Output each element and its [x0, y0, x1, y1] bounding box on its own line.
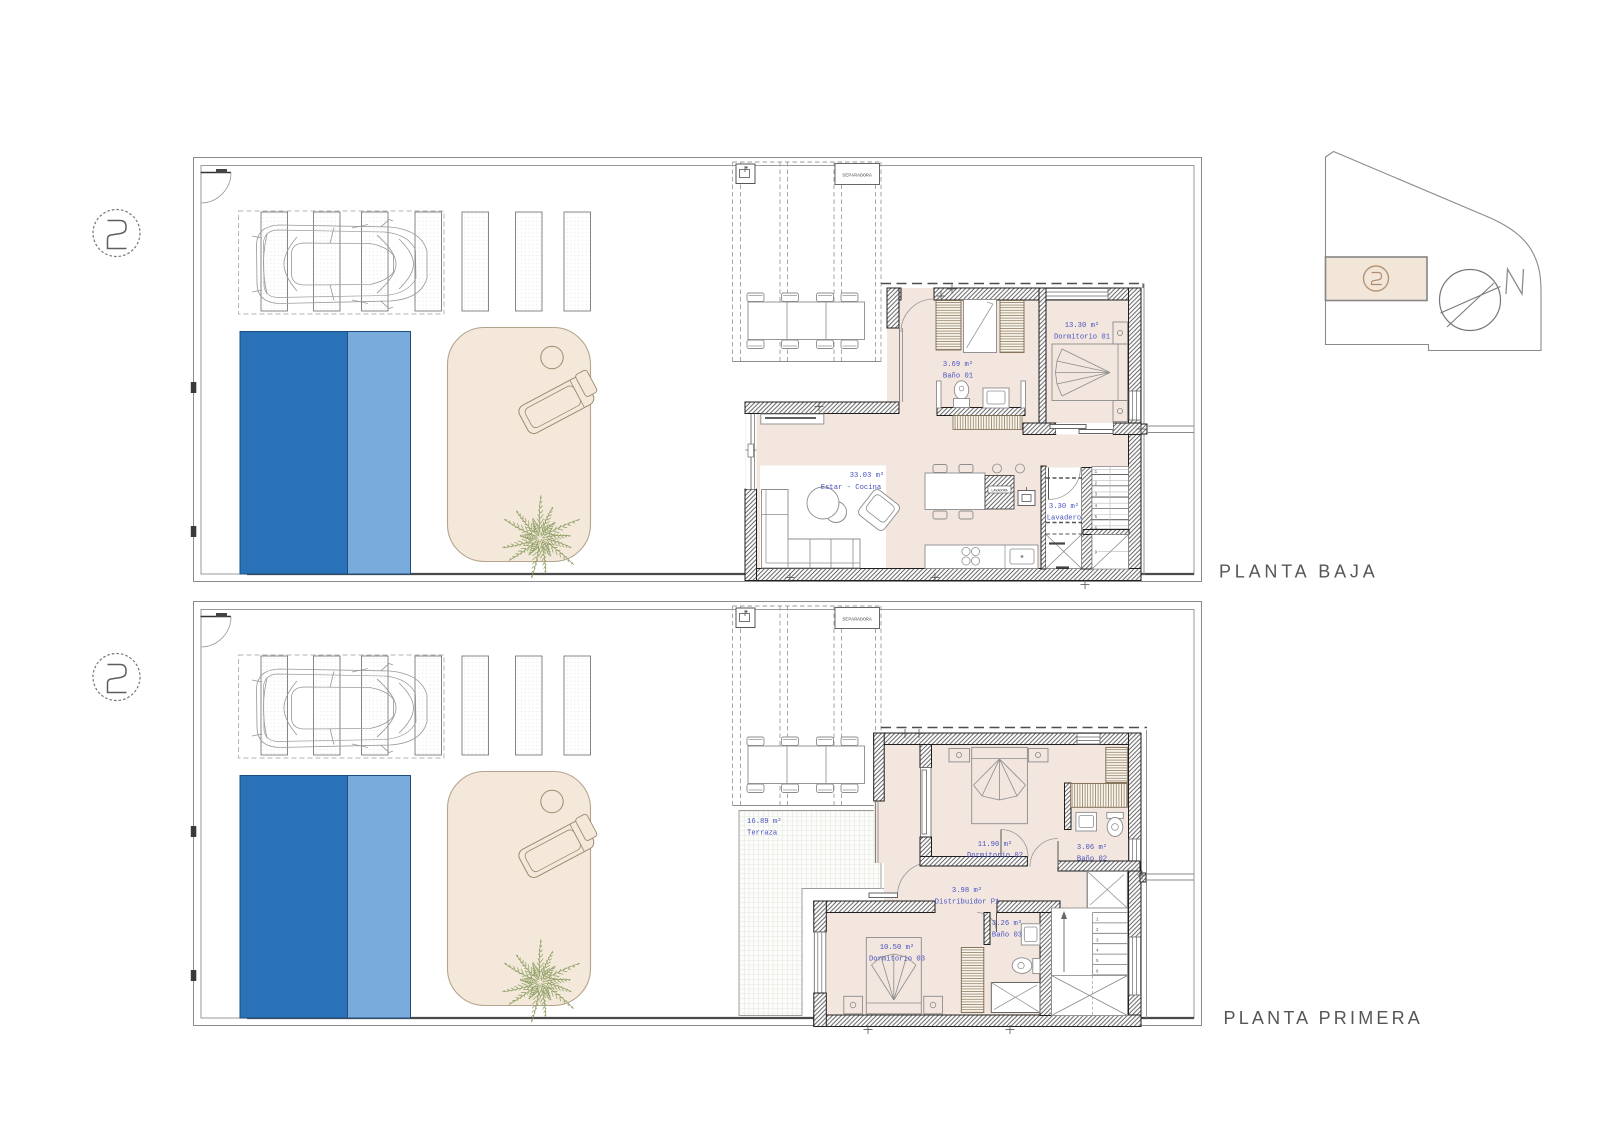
svg-text:2: 2: [1095, 481, 1098, 486]
svg-text:SEPARADORA: SEPARADORA: [842, 617, 872, 623]
svg-text:Estar - Cocina: Estar - Cocina: [821, 484, 882, 492]
svg-text:Distribuidor P1: Distribuidor P1: [935, 899, 1000, 907]
svg-text:4: 4: [1095, 504, 1098, 509]
svg-text:9: 9: [1095, 551, 1098, 556]
svg-text:13.30 m²: 13.30 m²: [1065, 321, 1100, 330]
svg-text:3.06 m²: 3.06 m²: [1077, 843, 1107, 852]
svg-text:3.69 m²: 3.69 m²: [943, 360, 973, 369]
svg-text:Terraza: Terraza: [747, 830, 778, 838]
svg-text:3.30 m²: 3.30 m²: [1049, 502, 1079, 511]
svg-text:3.98 m²: 3.98 m²: [952, 886, 982, 895]
svg-text:Baño 02: Baño 02: [1077, 856, 1107, 864]
svg-text:10.50 m²: 10.50 m²: [880, 943, 915, 952]
svg-text:LAVADORA: LAVADORA: [991, 490, 1008, 494]
svg-text:Dormitorio 02: Dormitorio 02: [967, 852, 1023, 860]
svg-text:Dormitorio 01: Dormitorio 01: [1054, 334, 1110, 342]
svg-text:3.26 m²: 3.26 m²: [992, 919, 1022, 928]
svg-text:Baño 03: Baño 03: [992, 932, 1022, 940]
svg-text:11.90 m²: 11.90 m²: [978, 840, 1013, 849]
svg-text:33.03 m²: 33.03 m²: [850, 471, 885, 480]
svg-text:Baño 01: Baño 01: [943, 373, 973, 381]
svg-text:Lavadero: Lavadero: [1047, 515, 1082, 523]
svg-text:5: 5: [1095, 515, 1098, 520]
svg-text:PLANTA BAJA: PLANTA BAJA: [1219, 562, 1379, 582]
svg-text:16.89 m²: 16.89 m²: [747, 817, 782, 826]
svg-text:Dormitorio 03: Dormitorio 03: [869, 956, 925, 964]
svg-text:3: 3: [1095, 493, 1098, 498]
svg-text:SEPARADORA: SEPARADORA: [842, 173, 872, 179]
svg-text:1: 1: [1095, 470, 1098, 475]
svg-text:PLANTA PRIMERA: PLANTA PRIMERA: [1224, 1008, 1424, 1028]
